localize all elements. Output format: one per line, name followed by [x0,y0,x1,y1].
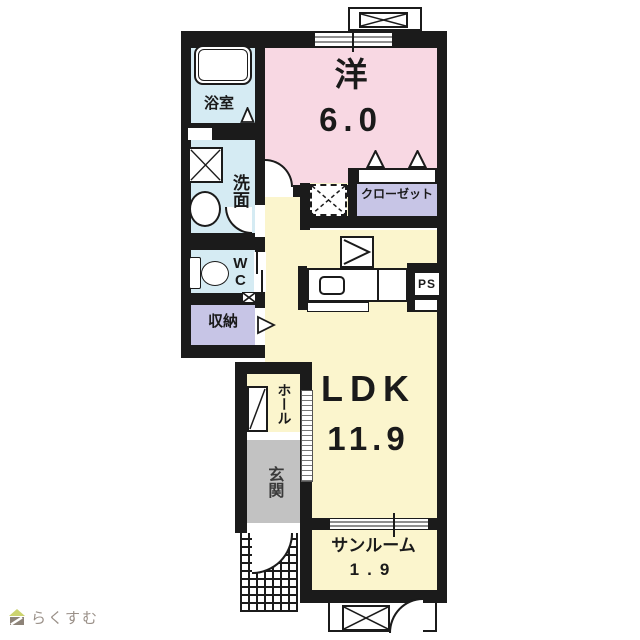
folding-door-marker-icon [408,150,427,168]
wall-left [181,31,191,358]
western-room-label: 洋 [265,55,437,95]
kitchen-step [307,302,369,312]
washroom-door-opening [255,205,265,237]
window-tick [393,513,395,537]
logo-text: らくすむ [31,607,99,628]
washbasin-icon [189,191,221,227]
ldk-label: LDK [300,368,437,410]
sunroom-size: 1.9 [310,560,437,580]
western-room-size-text: 6.0 [319,103,383,138]
ldk-label-text: LDK [321,370,416,408]
hall-label: ホール [273,374,295,434]
storage-door-arrow-icon [256,315,276,335]
bathtub-icon [194,45,252,85]
entrance-threshold [247,523,300,533]
toilet-bowl-icon [201,261,229,286]
site-logo: らくすむ [8,606,128,628]
ldk-size-text: 11.9 [327,422,409,457]
terrace-box-icon [342,605,390,631]
bathtub-inner-line [198,49,248,81]
refrigerator-icon [340,236,374,268]
folding-door-marker-icon [366,150,385,168]
door-line [256,252,258,274]
bath-label: 浴室 [191,94,247,114]
entrance-label: 玄関 [261,448,285,516]
kitchen-sink-icon [319,276,345,295]
kitchen-counter [307,268,408,302]
window-line [330,525,428,527]
bath-door-opening [188,128,212,140]
wall-closet-left [348,168,357,216]
wall-hall-left [235,362,247,533]
bath-label-text: 浴室 [204,96,234,112]
western-room-label-text: 洋 [335,58,368,93]
closet-label: クローゼット [357,186,437,202]
door-line [261,270,263,292]
hall-label-text: ホール [277,383,292,425]
washroom-label-text: 洗面 [230,174,248,208]
shoe-cabinet-icon [247,386,268,432]
ps-label: PS [418,278,436,291]
ldk-size: 11.9 [300,420,437,458]
wall-kitchen-left-stub [298,266,307,310]
closet-front [357,168,437,184]
ac-unit-inner-icon [359,12,408,28]
house-logo-icon [8,608,26,626]
ps-box: PS [415,273,439,295]
sunroom-window [330,519,428,529]
appliance-space-icon [310,184,347,216]
wc-sliding-door [254,252,266,292]
window-line [330,521,428,523]
wc-label: WC [229,246,251,298]
washroom-label: 洗面 [227,148,251,234]
storage-label: 収納 [191,312,255,332]
wall-storage-bottom [181,345,265,358]
sunroom-label-text: サンルーム [331,537,416,555]
toilet-tank-icon [189,257,201,289]
sunroom-label: サンルーム [310,536,437,556]
washing-machine-icon [188,147,223,183]
corridor [265,197,300,362]
ps-vent [415,300,437,310]
closet-label-text: クローゼット [361,188,433,201]
wall-closet-bottom [300,216,437,228]
floorplan: PS 浴室 洗面 WC 収納 洋 6.0 クローゼット [0,0,640,640]
wc-label-text: WC [232,255,248,289]
entrance-label-text: 玄関 [265,466,282,498]
counter-divider [377,270,379,300]
western-room-size: 6.0 [265,100,437,140]
sunroom-size-text: 1.9 [350,561,398,579]
storage-label-text: 収納 [208,314,238,330]
